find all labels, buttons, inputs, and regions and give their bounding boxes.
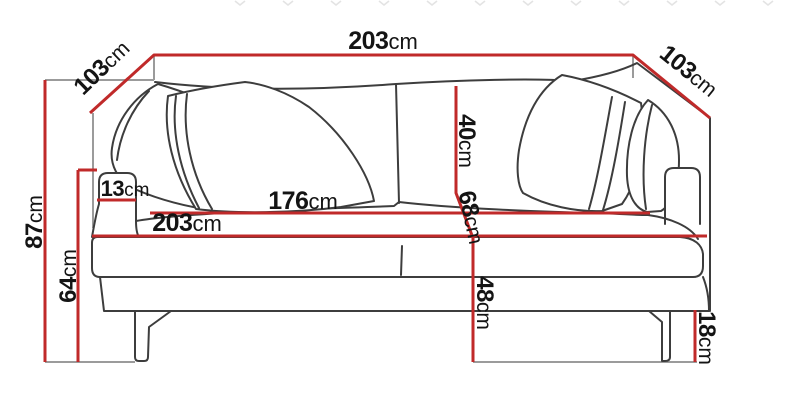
- dim-leg-height-label: 18cm: [693, 311, 720, 365]
- dim-total-height-label: 87cm: [21, 195, 48, 249]
- dim-total-width-label: 203cm: [348, 27, 418, 55]
- leg-left: [135, 311, 171, 361]
- sofa-back-seam: [396, 84, 399, 203]
- diagram-canvas: 203cm 103cm 103cm 87cm 64cm 13cm 176cm 2…: [0, 0, 800, 416]
- right-arm-panel: [665, 168, 700, 224]
- seat-cushion-front-seam: [401, 246, 402, 275]
- dim-seat-width-label: 176cm: [268, 187, 338, 215]
- sofa-dimension-diagram: 203cm 103cm 103cm 87cm 64cm 13cm 176cm 2…: [0, 0, 800, 416]
- leg-right: [649, 311, 670, 361]
- dim-depth-right-label: 103cm: [654, 40, 723, 103]
- seat-cushion-slab: [92, 237, 703, 277]
- dim-arm-width-label: 13cm: [101, 176, 150, 201]
- base-rail: [100, 277, 709, 311]
- watermark-marks: [235, 1, 773, 5]
- dim-arm-height-label: 64cm: [55, 249, 82, 303]
- dim-base-width-label: 203cm: [152, 209, 222, 237]
- dim-depth-left-label: 103cm: [68, 35, 135, 101]
- pillow-rear-right: [518, 75, 643, 211]
- dim-back-cushion-height-label: 40cm: [453, 114, 480, 168]
- dim-seat-height-label: 48cm: [471, 276, 498, 330]
